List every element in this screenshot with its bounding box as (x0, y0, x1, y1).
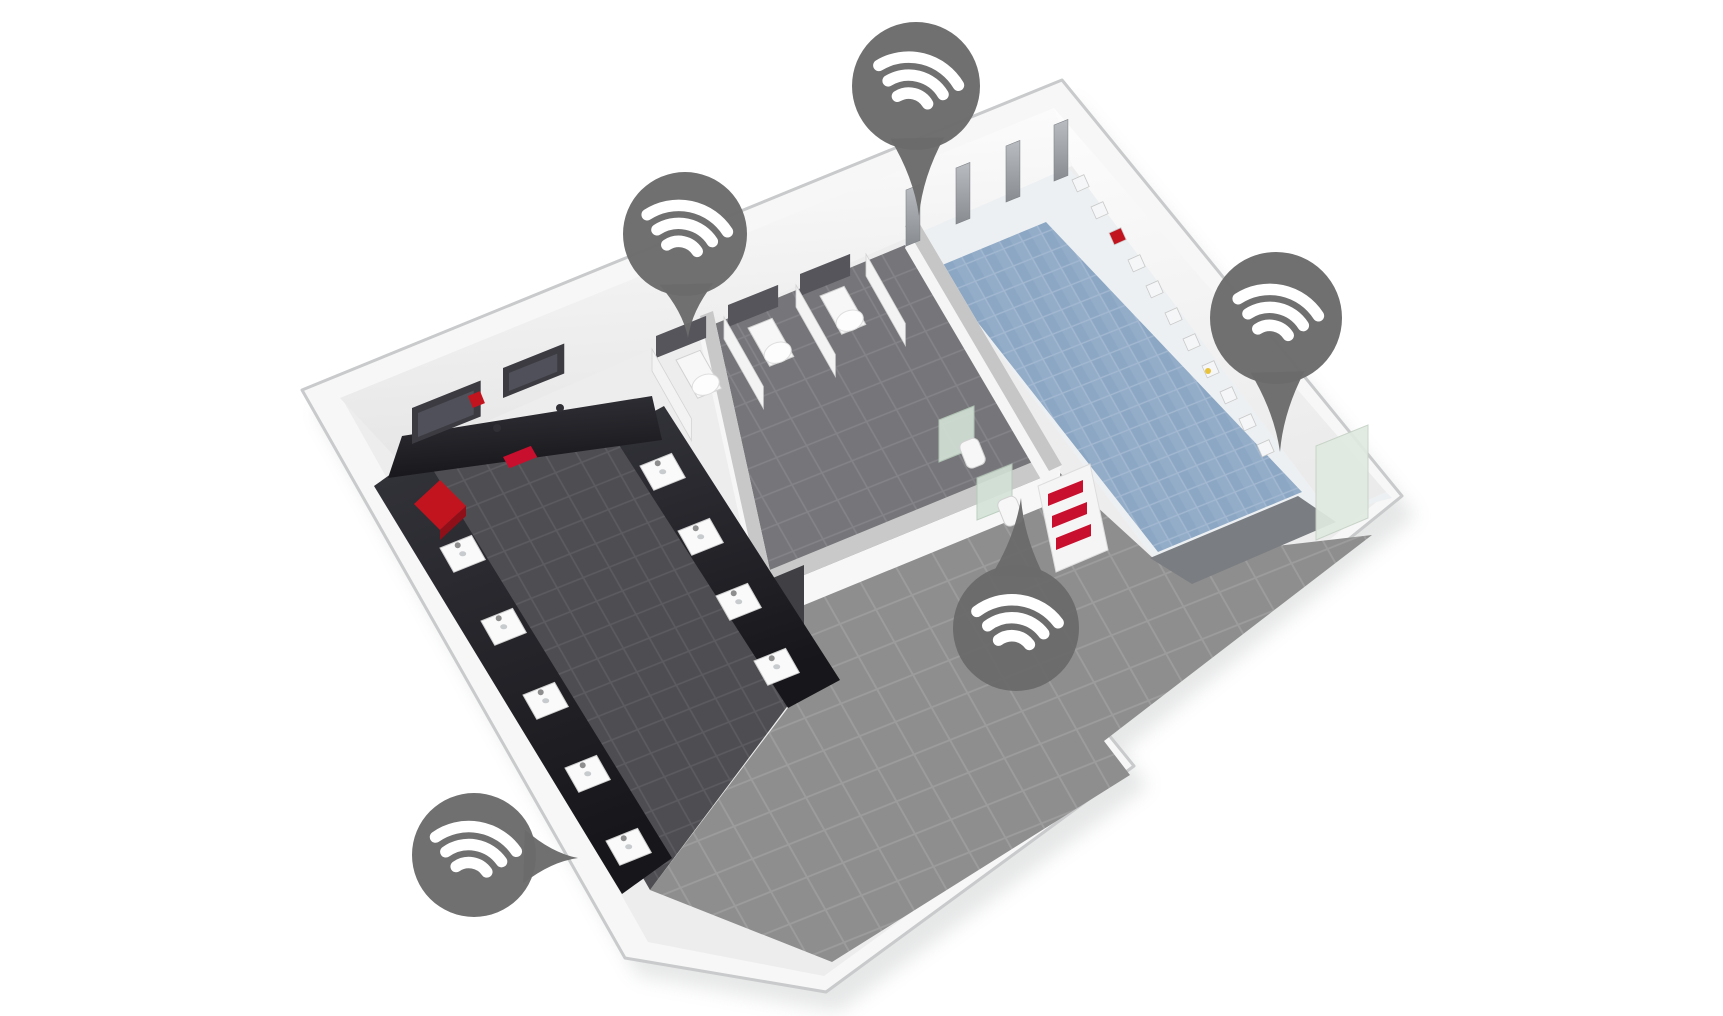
basin-drain (697, 534, 704, 539)
shower-control-panel (1006, 140, 1020, 202)
shower-control-panel (1054, 119, 1068, 181)
basin-drain (659, 469, 666, 474)
basin-drain (625, 844, 632, 849)
basin-drain (584, 771, 591, 776)
basin-drain (542, 698, 549, 703)
basin-drain (459, 551, 466, 556)
basin-drain (735, 599, 742, 604)
basin-faucet (455, 542, 461, 548)
basin-drain (500, 624, 507, 629)
basin-faucet (693, 525, 699, 531)
basin-faucet (621, 835, 627, 841)
basin-faucet (496, 615, 502, 621)
floorplan-illustration (0, 0, 1723, 1016)
basin-faucet (538, 689, 544, 695)
basin-faucet (731, 590, 737, 596)
dispenser-dot (1205, 368, 1211, 374)
faucet (493, 424, 501, 432)
faucet (556, 404, 564, 412)
basin-drain (773, 664, 780, 669)
basin-faucet (769, 655, 775, 661)
shower-control-panel (956, 162, 970, 224)
basin-faucet (580, 762, 586, 768)
basin-faucet (655, 460, 661, 466)
floorplan-svg (0, 0, 1723, 1016)
